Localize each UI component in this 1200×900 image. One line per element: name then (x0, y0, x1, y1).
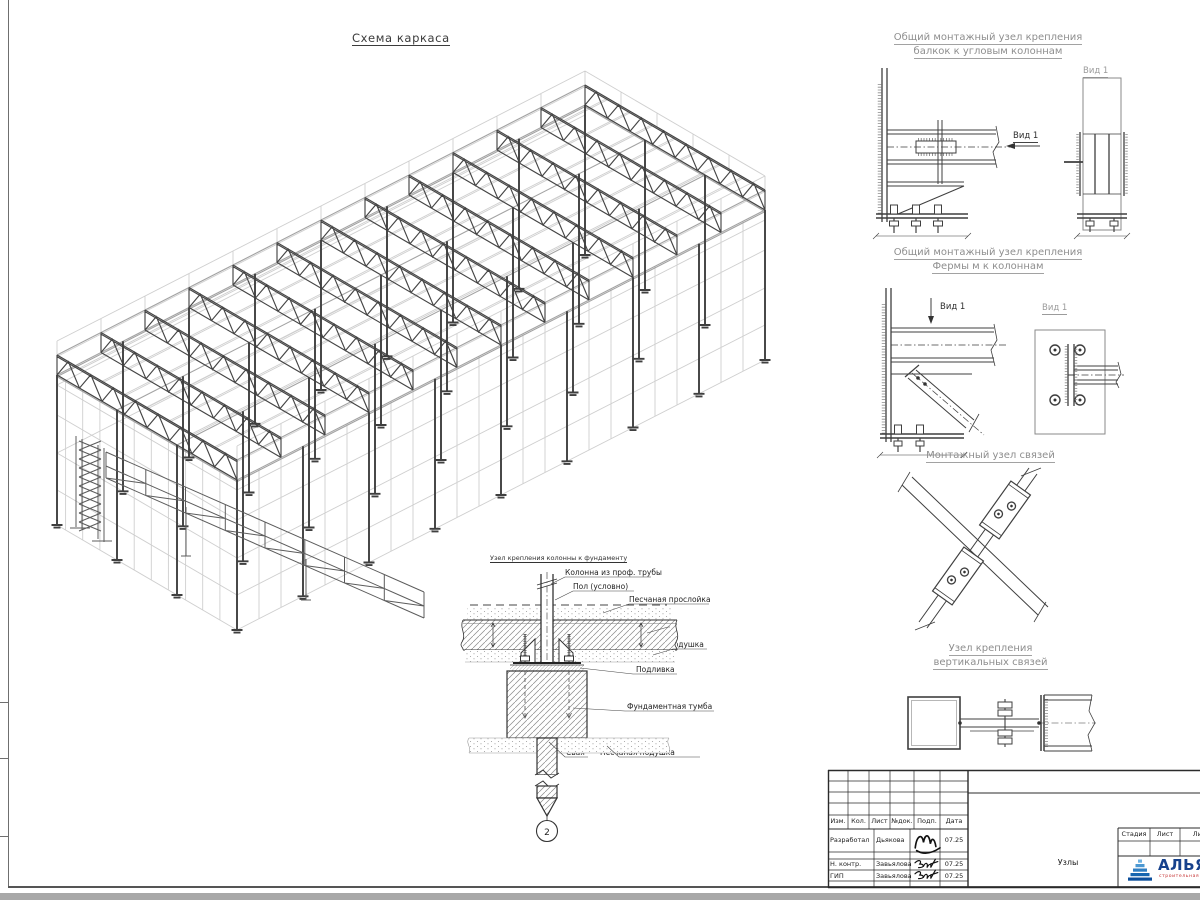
heading-line: балкок к угловым колоннам (914, 46, 1063, 59)
title-block: Изм. Кол. Лист №док. Подп. Дата Разработ… (828, 770, 1200, 888)
stage-header: Стадия (1118, 830, 1150, 838)
signature (912, 869, 942, 881)
heading-line: Общий монтажный узел крепления (894, 247, 1083, 260)
sign-name: Завьялова (876, 860, 912, 868)
rev-header-kol: Кол. (848, 817, 869, 825)
heading-line: Фермы м к колоннам (932, 261, 1043, 274)
heading-line: Монтажный узел связей (926, 450, 1055, 463)
rev-header-list: Лист (869, 817, 890, 825)
heading-line: Узел крепления (949, 643, 1033, 656)
rev-header-ndok: №док. (890, 817, 914, 825)
sign-role: Разработал (830, 836, 869, 844)
doc-name: Узлы (988, 858, 1148, 867)
detail-vertical-braces-drawing (898, 681, 1098, 763)
company-logo-icon (1126, 858, 1154, 884)
rev-header-podp: Подп. (914, 817, 940, 825)
sign-date: 07.25 (940, 860, 968, 868)
foundation-heading: Узел крепления колонны к фундаменту (490, 554, 627, 563)
detail-beam-corner-drawing (868, 64, 1198, 242)
detail-heading-beam-corner: Общий монтажный узел крепления балкок к … (878, 31, 1098, 59)
sheet-header: Лист (1150, 830, 1180, 838)
detail-heading-truss-column: Общий монтажный узел крепления Фермы м к… (878, 246, 1098, 274)
sign-name: Дьякова (876, 836, 905, 844)
foundation-drawing: 2 (455, 570, 740, 860)
sign-role: ГИП (830, 872, 844, 880)
drawing-sheet: Схема каркаса Общий монтажный узел крепл… (0, 0, 1200, 893)
signature (912, 830, 946, 852)
detail-truss-column-drawing (872, 282, 1132, 460)
frame-tick (0, 702, 8, 703)
heading-line: Общий монтажный узел крепления (894, 32, 1083, 45)
foundation-heading-text: Узел крепления колонны к фундаменту (490, 555, 627, 563)
sign-date: 07.25 (940, 872, 968, 880)
rev-header-data: Дата (940, 817, 968, 825)
detail-heading-vertical-braces: Узел крепления вертикальных связей (898, 642, 1083, 670)
company-logo-tagline: строительная компания (1159, 874, 1200, 879)
detail-heading-braces: Монтажный узел связей (898, 449, 1083, 463)
frame-tick (0, 758, 8, 759)
heading-line: вертикальных связей (933, 657, 1047, 670)
rev-header-izm: Изм. (828, 817, 848, 825)
sign-role: Н. контр. (830, 860, 861, 868)
detail-braces-drawing (890, 466, 1105, 648)
sheets-header: Лист (1180, 830, 1200, 838)
frame-tick (0, 836, 8, 837)
detail-marker-number: 2 (544, 828, 550, 838)
company-logo-name: АЛЬЯНС (1158, 856, 1200, 874)
sign-name: Завьялова (876, 872, 912, 880)
